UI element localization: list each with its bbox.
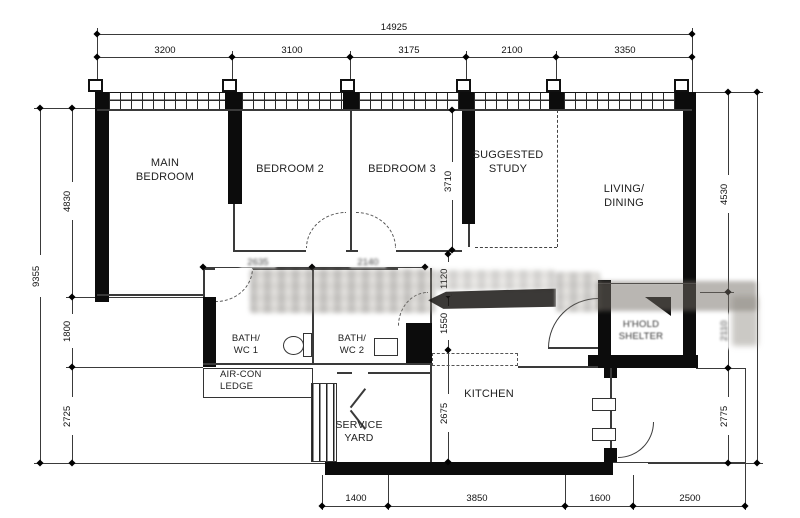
dim-top-4: 2100 [494,45,530,56]
room-label-bath1: BATH/ WC 1 [224,332,268,358]
window-tab [546,79,561,92]
dim-tick [93,30,100,37]
dim-tick [421,263,428,270]
dim-bottom-2: 3850 [459,493,495,504]
dim-tick [753,459,760,466]
dim-tick [741,502,748,509]
dim-top-1: 3200 [147,45,183,56]
dim-right-2: 2110 [719,313,731,349]
wall-line [518,366,598,368]
wall [203,297,216,367]
dim-mid-1: 2635 [240,257,276,268]
dim-left-1: 4830 [62,182,74,220]
dim-tick [384,502,391,509]
dim-tick [68,459,75,466]
dim-tick [724,459,731,466]
dim-mid-2: 2140 [350,257,386,268]
dim-tick [753,88,760,95]
kitchen-counter-dashed [432,353,518,366]
door-swing-bedroom2 [306,212,346,248]
wall-line [745,368,746,462]
dim-left-3: 2725 [62,397,74,435]
dim-tick [346,53,353,60]
dim-bottom-3: 1600 [582,493,618,504]
bifold-door [350,388,366,408]
window-tab [222,79,237,92]
dim-tick [68,104,75,111]
room-label-service-yard: SERVICE YARD [328,417,390,447]
wall [325,462,613,475]
dim-tick [688,53,695,60]
wall [459,92,474,109]
extension-line [66,297,203,298]
room-label-bedroom2: BEDROOM 2 [248,163,332,176]
window-tab [340,79,355,92]
dim-left-2: 1800 [62,314,74,348]
window-tab [674,79,689,92]
wall-line [430,364,432,462]
wall [683,92,696,368]
wall [588,355,698,368]
wall-line [430,268,432,323]
wall-line [203,268,205,297]
dim-tick [724,364,731,371]
dim-tick [93,53,100,60]
dim-bottom-1: 1400 [338,493,374,504]
dimension-line [97,57,692,58]
watermark-blur [732,296,758,346]
window-tab [88,79,103,92]
dimension-line [97,34,692,35]
room-label-main-bedroom: MAIN BEDROOM [123,156,207,186]
dim-top-2: 3100 [274,45,310,56]
wall-line [253,268,398,270]
dim-tick [36,459,43,466]
wall-line [312,268,314,364]
dim-bedroom3-depth: 3710 [443,162,455,200]
door-swing-bedroom3 [356,212,396,248]
extension-line [66,367,203,368]
dim-tick [318,502,325,509]
dim-right-3: 2775 [719,397,731,435]
dim-top-3: 3175 [391,45,427,56]
wall [343,92,359,109]
room-label-bedroom3: BEDROOM 3 [360,163,444,176]
wall-line [233,250,306,252]
dim-tick [561,502,568,509]
corridor-door [592,398,616,411]
wall-line [696,368,745,369]
dim-tick [629,502,636,509]
room-label-aircon-ledge: AIR-CON LEDGE [220,367,286,395]
wall-line [337,372,352,374]
dim-tick [724,288,731,295]
basin-icon [374,338,398,356]
wall-line [97,109,692,111]
wall [604,448,617,462]
floor-plan: 14925 3200 3100 3175 2100 3350 9355 4830… [0,0,800,518]
wall-line [350,110,352,250]
wall [95,92,109,302]
wall-line [468,224,470,247]
wall-line [368,372,430,374]
door-swing-bath2 [398,292,428,326]
extension-line [34,463,325,464]
corridor-door [592,428,616,441]
dim-overall-width: 14925 [370,22,418,33]
room-label-study: SUGGESTED STUDY [468,148,548,178]
dim-hall-lower: 1550 [439,306,451,340]
study-dashed-wall [475,247,557,249]
wall-line [203,363,432,365]
window-tab [456,79,471,92]
dim-kitchen-depth: 2675 [439,394,451,432]
toilet-tank-icon [303,333,312,357]
room-label-living-dining: LIVING/ DINING [592,182,656,212]
watermark-blur [436,270,556,290]
dim-right-1: 4530 [719,175,731,213]
dim-hall-upper: 1120 [439,262,451,296]
door-swing-kitchen [618,422,654,458]
dim-tick [552,53,559,60]
dimension-line [757,92,758,463]
dim-tick [68,293,75,300]
door-swing-bath1 [216,268,253,302]
room-label-kitchen: KITCHEN [458,388,520,401]
shelter-door-icon [645,297,671,316]
watermark-blur [597,281,757,311]
dim-tick [724,88,731,95]
dim-tick [688,30,695,37]
study-dashed-wall [557,110,559,247]
wall [225,92,242,109]
dim-tick [228,53,235,60]
dim-overall-height: 9355 [31,255,43,297]
wall-line [233,204,235,250]
door-swing-entrance [548,298,598,348]
wall [228,110,242,204]
dim-tick [462,53,469,60]
room-label-bath2: BATH/ WC 2 [330,332,374,358]
wall-line [97,294,203,296]
dim-tick [68,363,75,370]
wall [549,92,564,109]
wall-line [598,283,696,284]
dim-bottom-4: 2500 [672,493,708,504]
room-label-household-shelter: H'HOLD SHELTER [604,315,678,347]
dim-tick [36,104,43,111]
dim-top-5: 3350 [607,45,643,56]
toilet-icon [283,336,304,355]
wall [406,323,432,364]
wall-line [346,250,358,252]
